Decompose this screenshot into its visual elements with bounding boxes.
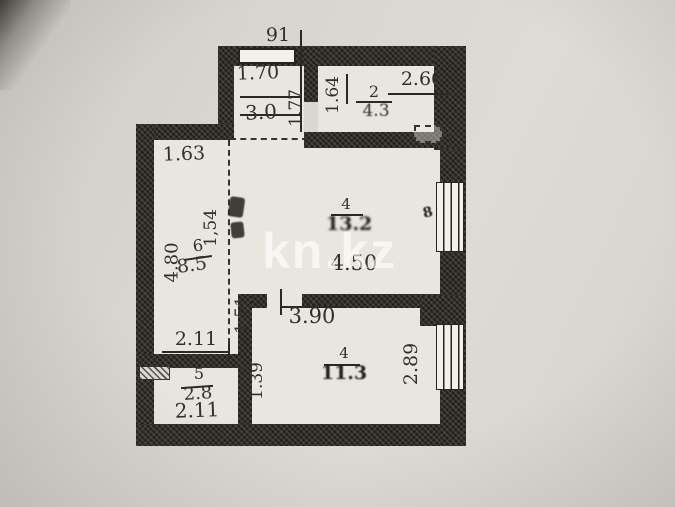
wall-bottom — [136, 424, 466, 446]
dim-room2-height: 1.64 — [325, 73, 343, 117]
dim-room6-width: 1.63 — [160, 144, 209, 166]
center-room-number: 4 — [334, 197, 358, 213]
dim-top-offset: 91 — [256, 26, 300, 46]
dim-center-left-lower: 1.51 — [234, 293, 252, 337]
dim-room4-width: 3.90 — [282, 305, 342, 327]
vent-shaft-icon — [414, 125, 442, 143]
dim-line — [388, 93, 450, 95]
dim-vestibule-width: 1.70 — [234, 63, 283, 85]
wall-vestibule-room2-upper — [304, 46, 318, 102]
dim-line — [346, 74, 348, 104]
room2-area: 4.3 — [356, 103, 396, 121]
room5-number: 5 — [188, 366, 210, 383]
dim-room5-height: 1.39 — [249, 359, 267, 403]
dim-room2-width: 2.66 — [394, 70, 450, 90]
smudge-mark — [228, 196, 246, 218]
dashed-boundary-horizontal — [230, 138, 308, 140]
smudge-mark — [230, 221, 245, 238]
window-right-upper-icon — [436, 182, 464, 252]
dim-vestibule-height: 1.77 — [288, 86, 306, 130]
room4-area: 11.3 — [320, 364, 368, 384]
door-hatch-icon — [139, 366, 170, 380]
dim-room5-width: 2.11 — [168, 330, 224, 350]
watermark: kn.kz — [262, 222, 397, 280]
room4-number: 4 — [332, 346, 356, 362]
photo-corner-shadow — [0, 0, 70, 90]
vestibule-area: 3.0 — [237, 101, 284, 124]
floor-plan-photo: 91 1.70 1.77 3.0 2.66 1.64 2 4.3 1.63 4.… — [0, 0, 675, 507]
wall-pier-right — [420, 296, 466, 326]
dim-bottom-width: 2.11 — [168, 399, 227, 422]
dashed-boundary-vertical — [228, 140, 230, 354]
dim-tick — [228, 344, 230, 360]
dim-room4-height: 2.89 — [402, 341, 422, 387]
wall-left — [136, 124, 154, 444]
window-right-lower-icon — [436, 324, 464, 390]
room2-number: 2 — [362, 84, 386, 101]
dim-line — [162, 351, 230, 353]
